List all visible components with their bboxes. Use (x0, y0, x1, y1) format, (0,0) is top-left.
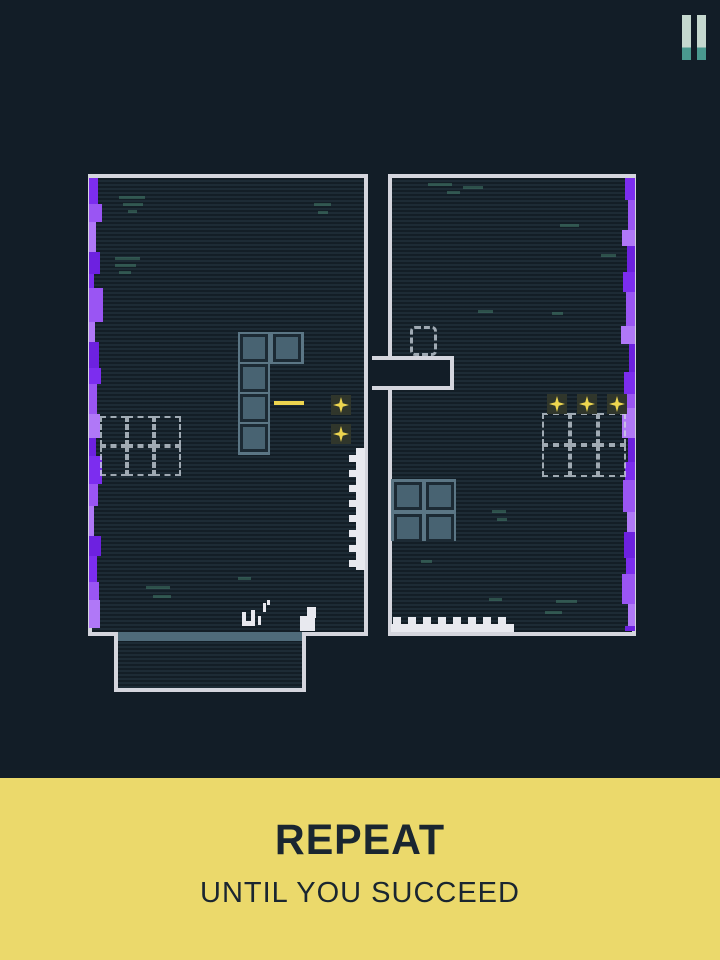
decor-dash (463, 186, 483, 189)
glitch-edge (623, 272, 635, 292)
ghost-block (100, 416, 127, 446)
solid-block (240, 334, 268, 362)
edge-bump-tooth (498, 617, 506, 625)
glitch-edge (622, 574, 635, 604)
ghost-block (598, 413, 626, 445)
decor-dash (153, 595, 171, 598)
decor-dash (492, 510, 506, 513)
glitch-edge (626, 558, 635, 574)
decor-dash (128, 210, 137, 213)
glitch-edge (624, 532, 635, 558)
edge-bumps (391, 624, 514, 632)
player-sprite (251, 610, 255, 626)
ghost-block (542, 445, 570, 477)
glitch-edge (627, 246, 635, 272)
ghost-block (154, 416, 181, 446)
decor-dash (556, 600, 577, 603)
decor-dash (447, 191, 460, 194)
edge-bump-tooth (393, 617, 401, 625)
decor-dash (489, 598, 502, 601)
decor-dash (497, 518, 507, 521)
glitch-edge (628, 438, 635, 462)
ghost-block (154, 446, 181, 476)
edge-zipper (356, 448, 365, 570)
glitch-edge (625, 178, 635, 200)
edge-zipper-tooth (349, 470, 357, 477)
edge-zipper-tooth (349, 560, 357, 567)
glitch-edge (627, 512, 635, 532)
pause-icon (697, 15, 706, 60)
glitch-edge (89, 252, 100, 274)
glitch-edge (628, 200, 635, 230)
player-sprite (267, 600, 270, 605)
edge-zipper-tooth (349, 530, 357, 537)
edge-zipper-tooth (349, 500, 357, 507)
decor-dash (115, 257, 140, 260)
glitch-edge (89, 438, 96, 456)
solid-block (394, 514, 422, 542)
ghost-block (542, 413, 570, 445)
decor-dash (318, 211, 328, 214)
decor-dash (552, 312, 563, 315)
decor-dash (146, 586, 170, 589)
ghost-door-outline (410, 326, 437, 356)
glitch-edge (89, 222, 96, 252)
white-step (300, 616, 315, 631)
glitch-edge (89, 178, 98, 204)
glitch-edge (625, 626, 635, 631)
glitch-edge (89, 556, 97, 582)
edge-bump-tooth (408, 617, 416, 625)
solid-block (426, 482, 454, 510)
solid-block (240, 364, 268, 392)
glitch-edge (89, 484, 98, 506)
ghost-block (570, 445, 598, 477)
edge-bump-tooth (423, 617, 431, 625)
solid-block (394, 482, 422, 510)
solid-block (240, 394, 268, 422)
glitch-edge (89, 288, 103, 322)
glitch-edge (628, 604, 635, 626)
ghost-block (127, 416, 154, 446)
ghost-block (598, 445, 626, 477)
decor-dash (123, 203, 143, 206)
decor-dash (119, 196, 145, 199)
glitch-edge (621, 326, 635, 344)
edge-bump-tooth (438, 617, 446, 625)
glitch-edge (624, 372, 635, 394)
glitch-edge (627, 394, 635, 408)
glitch-edge (89, 600, 100, 628)
edge-bump-tooth (468, 617, 476, 625)
banner-title: REPEAT (14, 778, 705, 865)
decor-dash (421, 560, 432, 563)
decor-dash (238, 577, 251, 580)
decor-dash (601, 254, 616, 257)
decor-dash (314, 203, 331, 206)
glitch-edge (89, 204, 102, 222)
glitch-edge (626, 292, 635, 326)
room-left-tray (114, 632, 306, 692)
glitch-edge (89, 322, 95, 342)
edge-bump-tooth (453, 617, 461, 625)
tray-floor-surface (118, 632, 302, 641)
edge-zipper-tooth (349, 455, 357, 462)
edge-bump-tooth (483, 617, 491, 625)
ghost-block (127, 446, 154, 476)
room-right (388, 174, 636, 636)
glitch-edge (89, 342, 99, 368)
solid-block (426, 514, 454, 542)
decor-dash (119, 271, 131, 274)
player-beam (274, 401, 304, 405)
decor-dash (545, 611, 562, 614)
message-banner: REPEAT UNTIL YOU SUCCEED (0, 778, 720, 960)
decor-dash (560, 224, 579, 227)
ghost-block (570, 413, 598, 445)
decor-dash (478, 310, 493, 313)
room-left (88, 174, 368, 636)
banner-subtitle: UNTIL YOU SUCCEED (0, 865, 720, 910)
edge-zipper-tooth (349, 515, 357, 522)
glitch-edge (89, 368, 101, 384)
pause-button[interactable] (678, 13, 714, 63)
solid-block (240, 424, 268, 452)
player-sprite (263, 603, 266, 612)
player-sprite (258, 616, 261, 625)
passage-notch (372, 356, 454, 390)
glitch-edge (89, 414, 100, 438)
ghost-block (100, 446, 127, 476)
glitch-edge (89, 506, 94, 536)
glitch-edge (89, 274, 94, 288)
glitch-edge (625, 462, 635, 480)
glitch-edge (622, 230, 635, 246)
pause-icon (682, 15, 691, 60)
glitch-edge (89, 536, 101, 556)
decor-dash (428, 183, 452, 186)
solid-block (273, 334, 301, 362)
edge-zipper-tooth (349, 545, 357, 552)
decor-dash (115, 264, 136, 267)
glitch-edge (89, 384, 97, 414)
edge-zipper-tooth (349, 485, 357, 492)
glitch-edge (623, 480, 635, 512)
glitch-edge (89, 582, 99, 600)
glitch-edge (629, 344, 635, 372)
